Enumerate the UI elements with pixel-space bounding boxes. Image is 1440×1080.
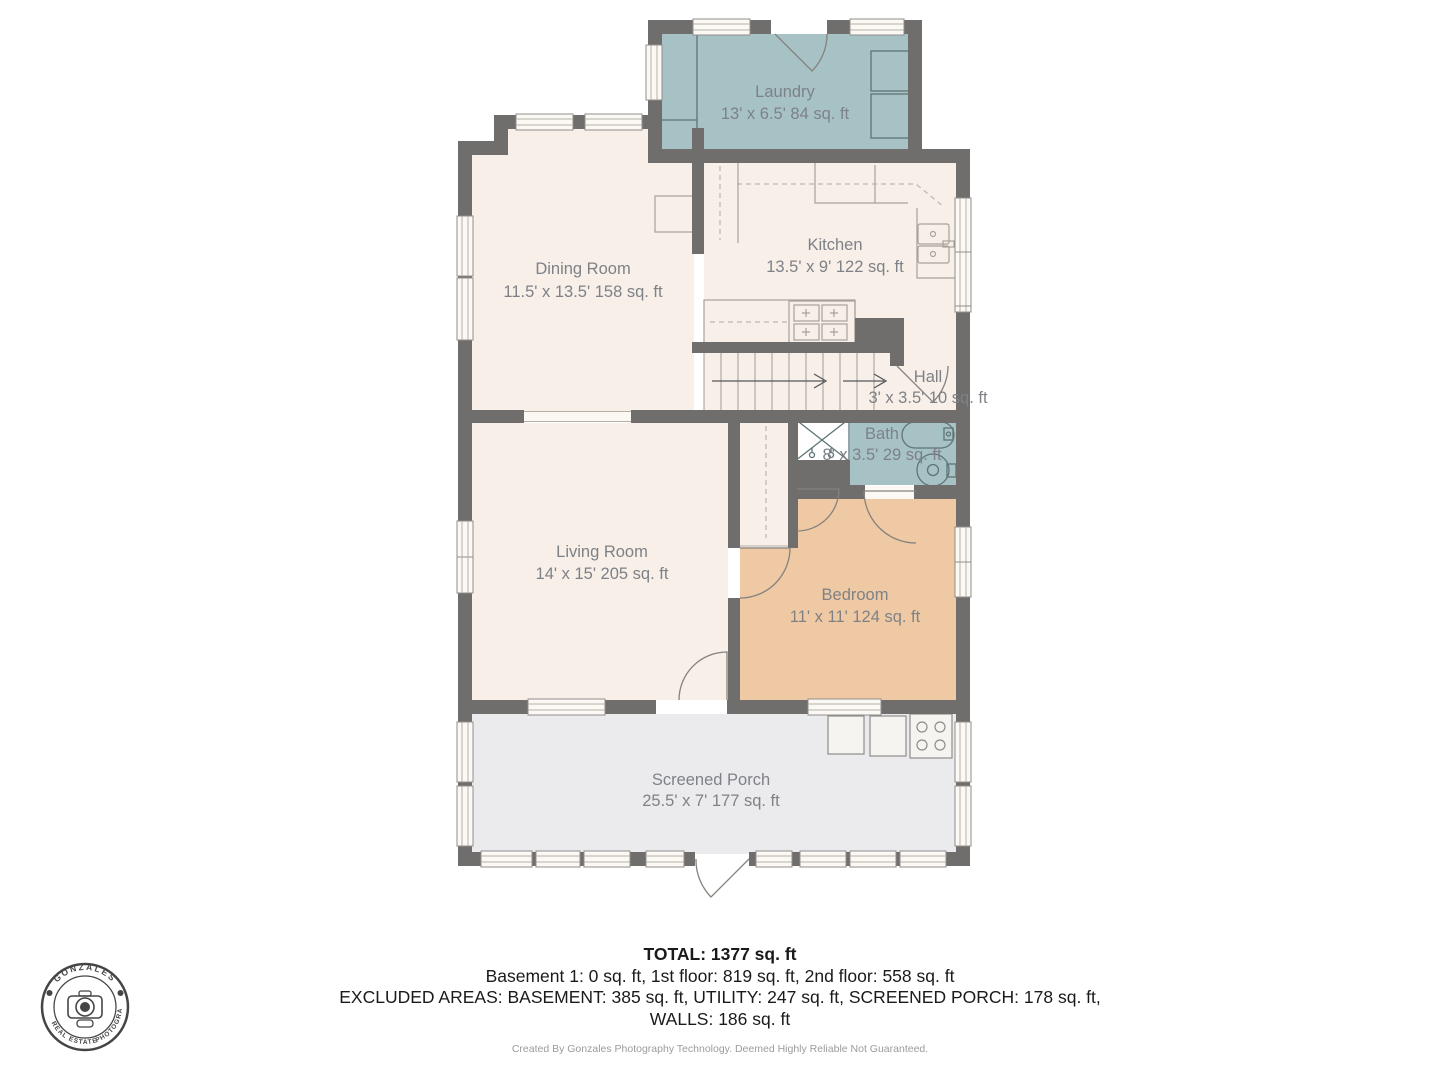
laundry-door-opening [771, 20, 827, 34]
wall-areas: WALLS: 186 sq. ft [0, 1009, 1440, 1031]
room-label-kitchen: Kitchen [807, 236, 862, 254]
svg-text:REAL ESTATE: REAL ESTATE [50, 1020, 99, 1046]
floor-areas: Basement 1: 0 sq. ft, 1st floor: 819 sq.… [0, 966, 1440, 988]
logo-text-top: GONZALES [51, 962, 118, 984]
closet-corridor-floor [740, 423, 788, 548]
camera-icon [68, 991, 102, 1027]
floor-plan-drawing: Laundry 13' x 6.5' 84 sq. ft Dining Room… [0, 0, 1440, 935]
room-dims-bath: 8' x 3.5' 29 sq. ft [822, 446, 942, 464]
logo-text-left: REAL ESTATE [50, 1020, 99, 1046]
porch-exterior-door-arc [696, 859, 749, 897]
room-label-porch: Screened Porch [652, 771, 770, 789]
room-dims-hall: 3' x 3.5' 10 sq. ft [868, 389, 988, 407]
excluded-areas: EXCLUDED AREAS: BASEMENT: 385 sq. ft, UT… [0, 987, 1440, 1009]
room-dims-bedroom: 11' x 11' 124 sq. ft [790, 608, 921, 626]
room-label-laundry: Laundry [755, 83, 815, 101]
total-area: TOTAL: 1377 sq. ft [0, 944, 1440, 966]
room-label-dining: Dining Room [535, 260, 630, 278]
floor-plan-page: { "plan": { "rooms": [ {"id":"laundry","… [0, 0, 1440, 1080]
room-dims-kitchen: 13.5' x 9' 122 sq. ft [766, 258, 904, 276]
living-room-floor [470, 423, 728, 700]
porch-table [828, 716, 864, 754]
area-summary: TOTAL: 1377 sq. ft Basement 1: 0 sq. ft,… [0, 944, 1440, 1061]
svg-text:GONZALES: GONZALES [51, 962, 118, 984]
bath-door-opening [865, 486, 914, 499]
room-label-hall: Hall [914, 368, 942, 386]
porch-table [870, 716, 906, 756]
room-dims-living: 14' x 15' 205 sq. ft [536, 565, 669, 583]
porch-fixtures [828, 714, 952, 758]
room-dims-laundry: 13' x 6.5' 84 sq. ft [721, 105, 850, 123]
room-label-living: Living Room [556, 543, 648, 561]
room-label-bedroom: Bedroom [822, 586, 889, 604]
photographer-logo: GONZALES REAL ESTATE PHOTOGRAPHY [38, 960, 132, 1054]
room-dims-porch: 25.5' x 7' 177 sq. ft [642, 792, 780, 810]
credit-line: Created By Gonzales Photography Technolo… [0, 1039, 1440, 1061]
stairs-floor [704, 353, 890, 412]
room-label-bath: Bath [865, 425, 899, 443]
grill-icon [910, 714, 952, 758]
cased-opening [524, 411, 631, 422]
room-dims-dining: 11.5' x 13.5' 158 sq. ft [503, 283, 663, 301]
